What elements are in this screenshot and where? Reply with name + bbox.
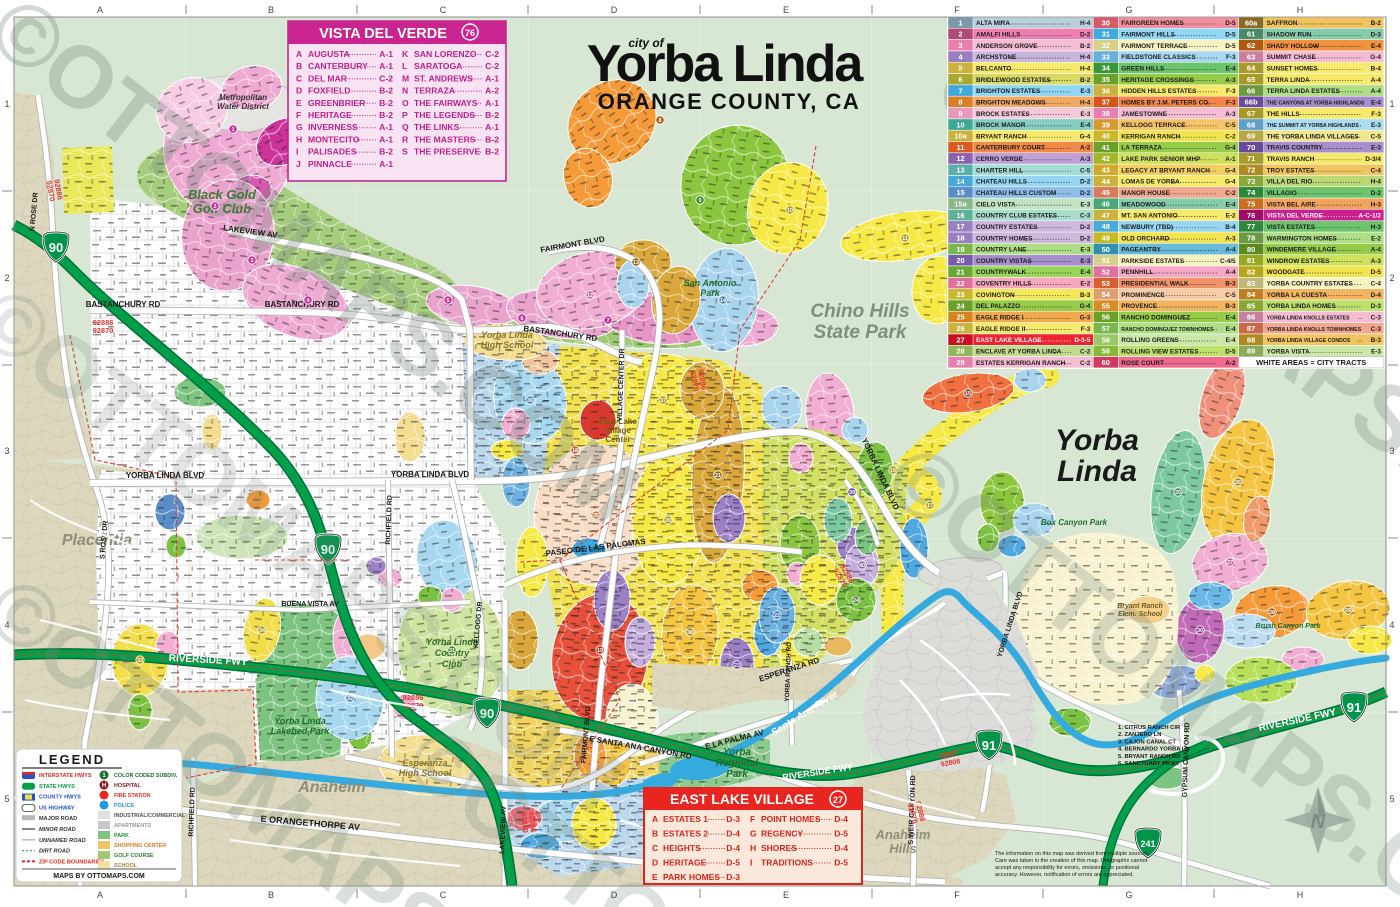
svg-text:N: N: [402, 86, 408, 96]
svg-text:D-4: D-4: [726, 843, 740, 853]
svg-text:VISTA ESTATES: VISTA ESTATES: [1267, 224, 1316, 231]
svg-text:E: E: [296, 98, 302, 108]
svg-text:B-2: B-2: [485, 147, 499, 157]
svg-text:A-4: A-4: [1371, 88, 1382, 95]
svg-text:A-3: A-3: [1225, 111, 1236, 118]
svg-text:Village: Village: [605, 426, 631, 435]
svg-text:D-3: D-3: [1371, 303, 1382, 310]
svg-text:81: 81: [1247, 256, 1255, 265]
svg-text:26: 26: [956, 324, 964, 333]
svg-text:E-4: E-4: [1371, 99, 1381, 106]
svg-text:Elem. School: Elem. School: [1118, 611, 1163, 618]
svg-text:5: 5: [958, 64, 962, 73]
svg-text:THE YORBA LINDA VILLAGES: THE YORBA LINDA VILLAGES: [1267, 133, 1360, 140]
svg-text:BASTANCHURY RD: BASTANCHURY RD: [86, 300, 161, 309]
svg-text:Club: Club: [442, 659, 462, 669]
svg-text:COLOR CODED SUBDIV.: COLOR CODED SUBDIV.: [114, 773, 178, 779]
svg-text:78: 78: [1247, 234, 1255, 243]
svg-text:65: 65: [1247, 75, 1255, 84]
svg-text:C-2: C-2: [1225, 133, 1236, 140]
svg-text:GREEN HILLS: GREEN HILLS: [1121, 66, 1165, 73]
svg-text:46: 46: [1102, 200, 1110, 209]
svg-text:FOXFIELD: FOXFIELD: [308, 86, 351, 96]
svg-text:76: 76: [1247, 211, 1255, 220]
svg-text:TRADITIONS: TRADITIONS: [761, 858, 813, 868]
svg-text:J: J: [296, 159, 301, 169]
svg-text:THE SUMMIT AT YORBA HIGHLANDS: THE SUMMIT AT YORBA HIGHLANDS: [1267, 123, 1360, 129]
svg-text:15a: 15a: [954, 200, 967, 209]
svg-text:D: D: [611, 5, 618, 15]
svg-text:COUNTY HWYS: COUNTY HWYS: [39, 795, 81, 801]
svg-text:YORBA LINDA KNOLLS ESTATES: YORBA LINDA KNOLLS ESTATES: [1267, 316, 1351, 322]
svg-text:40: 40: [1102, 132, 1110, 141]
svg-text:16: 16: [956, 211, 964, 220]
svg-text:23: 23: [734, 663, 740, 669]
svg-text:29: 29: [1345, 608, 1351, 614]
svg-text:CIELO VISTA: CIELO VISTA: [976, 201, 1016, 208]
svg-text:3: 3: [4, 446, 9, 456]
svg-text:A-1: A-1: [379, 159, 393, 169]
svg-text:D-2: D-2: [1080, 224, 1091, 231]
svg-text:EAST LAKE VILLAGE: EAST LAKE VILLAGE: [670, 791, 814, 807]
svg-text:Golf Club: Golf Club: [193, 201, 252, 216]
svg-text:B: B: [296, 61, 302, 71]
svg-text:22: 22: [774, 613, 780, 619]
svg-text:HOSPITAL: HOSPITAL: [114, 783, 142, 789]
svg-text:G: G: [750, 829, 757, 839]
svg-text:34: 34: [259, 628, 266, 634]
svg-text:A-1: A-1: [485, 73, 499, 83]
svg-text:C-3: C-3: [1371, 326, 1382, 333]
svg-text:A-1: A-1: [379, 122, 393, 132]
svg-text:NEWBURY (TBD): NEWBURY (TBD): [1121, 224, 1173, 231]
svg-text:6. SANCTUARY PKWY: 6. SANCTUARY PKWY: [1118, 761, 1180, 767]
svg-text:66b: 66b: [1245, 98, 1258, 107]
svg-text:68: 68: [1247, 120, 1255, 129]
svg-text:C-3: C-3: [1371, 315, 1382, 322]
svg-text:45: 45: [1102, 188, 1110, 197]
svg-text:F: F: [954, 890, 960, 900]
svg-text:PINNACLE: PINNACLE: [308, 159, 352, 169]
svg-text:G-4: G-4: [1225, 167, 1236, 174]
svg-text:HEIGHTS: HEIGHTS: [663, 843, 701, 853]
svg-text:DEL MAR: DEL MAR: [308, 73, 348, 83]
svg-text:D-3: D-3: [726, 814, 740, 824]
svg-text:STATE HWYS: STATE HWYS: [39, 784, 75, 790]
svg-text:74: 74: [1247, 188, 1256, 197]
svg-text:HERITAGE CROSSINGS: HERITAGE CROSSINGS: [1121, 77, 1194, 84]
svg-text:THE PRESERVE: THE PRESERVE: [414, 147, 480, 157]
svg-text:F-3: F-3: [1081, 326, 1091, 333]
svg-text:PALISADES: PALISADES: [308, 147, 357, 157]
svg-text:A: A: [652, 814, 658, 824]
svg-text:YORBA LINDA BLVD: YORBA LINDA BLVD: [391, 470, 470, 479]
svg-text:BRIGHTON ESTATES: BRIGHTON ESTATES: [976, 88, 1041, 95]
svg-text:10: 10: [956, 120, 964, 129]
svg-text:5: 5: [4, 794, 9, 804]
svg-text:D-4: D-4: [834, 843, 848, 853]
svg-text:D: D: [296, 86, 302, 96]
svg-text:27: 27: [1227, 560, 1233, 566]
svg-text:CANTERBURY COURT: CANTERBURY COURT: [976, 145, 1045, 152]
svg-text:C: C: [652, 843, 658, 853]
svg-text:COUNTRY CLUB ESTATES: COUNTRY CLUB ESTATES: [976, 213, 1058, 220]
svg-text:B-2: B-2: [379, 86, 393, 96]
svg-text:THE MASTERS: THE MASTERS: [414, 134, 476, 144]
svg-text:5: 5: [1389, 794, 1394, 804]
svg-text:12: 12: [956, 154, 964, 163]
svg-text:B-2: B-2: [485, 134, 499, 144]
svg-text:PROVENCE: PROVENCE: [1121, 303, 1158, 310]
svg-text:59: 59: [1102, 347, 1110, 356]
svg-text:77: 77: [1247, 222, 1255, 231]
svg-text:D-3: D-3: [1371, 32, 1382, 39]
svg-text:YORBA LA CUESTA: YORBA LA CUESTA: [1267, 292, 1328, 299]
svg-text:50: 50: [1102, 245, 1110, 254]
svg-text:33: 33: [137, 658, 143, 664]
svg-text:PARK HOMES: PARK HOMES: [663, 872, 720, 882]
svg-text:1: 1: [4, 99, 9, 109]
svg-text:G: G: [1125, 890, 1132, 900]
svg-text:Anaheim: Anaheim: [297, 779, 366, 796]
svg-text:KELLOGG TERRACE: KELLOGG TERRACE: [1121, 122, 1186, 129]
svg-text:62: 62: [1247, 41, 1255, 50]
svg-text:B-2: B-2: [1371, 20, 1382, 27]
svg-text:D-5: D-5: [1225, 349, 1236, 356]
svg-text:85: 85: [1247, 301, 1255, 310]
svg-text:A: A: [97, 890, 103, 900]
svg-text:C-2: C-2: [485, 61, 499, 71]
svg-text:B-3: B-3: [1080, 292, 1091, 299]
svg-text:E-2: E-2: [1080, 281, 1090, 288]
svg-text:6: 6: [520, 316, 523, 322]
svg-text:36: 36: [1102, 86, 1110, 95]
svg-text:B-2: B-2: [379, 98, 393, 108]
svg-text:F-3: F-3: [1226, 99, 1236, 106]
svg-text:G: G: [296, 122, 303, 132]
svg-text:67: 67: [1247, 109, 1255, 118]
svg-text:7: 7: [606, 318, 609, 324]
svg-text:28: 28: [956, 347, 964, 356]
svg-text:2. ZANJERO LN: 2. ZANJERO LN: [1118, 732, 1161, 738]
svg-text:D: D: [652, 858, 658, 868]
svg-text:TERRA LINDA: TERRA LINDA: [1267, 77, 1310, 84]
svg-text:61: 61: [1247, 30, 1255, 39]
svg-text:APARTMENTS: APARTMENTS: [114, 823, 151, 829]
svg-text:43: 43: [1102, 166, 1110, 175]
svg-text:ST. ANDREWS: ST. ANDREWS: [414, 73, 473, 83]
svg-text:POINT HOMES: POINT HOMES: [761, 814, 821, 824]
svg-text:9: 9: [958, 109, 962, 118]
svg-text:51: 51: [1102, 256, 1110, 265]
svg-text:TERRAZA: TERRAZA: [414, 86, 455, 96]
svg-text:9: 9: [698, 198, 701, 204]
svg-text:E-3: E-3: [1080, 201, 1090, 208]
svg-text:G: G: [1125, 5, 1132, 15]
svg-text:TRAVIS COUNTRY: TRAVIS COUNTRY: [1267, 145, 1324, 152]
svg-text:YORBA COUNTRY ESTATES: YORBA COUNTRY ESTATES: [1267, 281, 1354, 288]
svg-text:16: 16: [890, 468, 896, 474]
svg-text:3: 3: [250, 258, 253, 264]
svg-text:VISTA BEL AIRE: VISTA BEL AIRE: [1267, 201, 1317, 208]
svg-text:E-4: E-4: [1226, 337, 1236, 344]
svg-text:Park: Park: [700, 288, 721, 298]
svg-text:C-2: C-2: [485, 49, 499, 59]
svg-text:H: H: [1297, 5, 1304, 15]
svg-text:MINOR ROAD: MINOR ROAD: [39, 827, 76, 833]
svg-text:21: 21: [715, 473, 721, 479]
svg-text:F-3: F-3: [1226, 88, 1236, 95]
svg-text:PAGEANTRY: PAGEANTRY: [1121, 247, 1161, 254]
svg-text:H-4: H-4: [1371, 179, 1382, 186]
svg-text:SHADY HOLLOW: SHADY HOLLOW: [1267, 43, 1320, 50]
svg-text:E-3: E-3: [1371, 349, 1381, 356]
svg-text:M: M: [402, 73, 409, 83]
svg-text:H: H: [296, 134, 302, 144]
svg-text:accuracy. However, notificatio: accuracy. However, notification of error…: [995, 872, 1134, 878]
svg-text:55: 55: [1102, 301, 1110, 310]
svg-text:ALTA MIRA: ALTA MIRA: [976, 20, 1010, 27]
svg-text:3. CAJON CANAL CT: 3. CAJON CANAL CT: [1118, 739, 1176, 745]
svg-text:40: 40: [859, 563, 865, 569]
svg-text:C-5: C-5: [1080, 167, 1091, 174]
svg-text:CHATEAU HILLS CUSTOM: CHATEAU HILLS CUSTOM: [976, 190, 1056, 197]
svg-text:D-5: D-5: [1225, 43, 1236, 50]
svg-text:B-2: B-2: [379, 110, 393, 120]
svg-text:1: 1: [231, 127, 234, 133]
svg-text:E-4: E-4: [1226, 201, 1236, 208]
svg-text:D-5: D-5: [726, 858, 740, 868]
svg-text:D-2: D-2: [1080, 179, 1091, 186]
svg-text:A-1: A-1: [379, 61, 393, 71]
svg-text:D-3-5: D-3-5: [1074, 337, 1090, 344]
svg-text:31: 31: [449, 648, 455, 654]
svg-text:INVERNESS: INVERNESS: [308, 122, 358, 132]
svg-text:COUNTRY HOMES: COUNTRY HOMES: [976, 235, 1033, 242]
svg-text:Yorba Linda: Yorba Linda: [274, 716, 326, 726]
svg-text:1. CITRUS RANCH CIR: 1. CITRUS RANCH CIR: [1118, 725, 1181, 731]
svg-text:A-4: A-4: [1371, 77, 1382, 84]
svg-text:70: 70: [1247, 143, 1255, 152]
svg-text:ZIP CODE BOUNDARIES: ZIP CODE BOUNDARIES: [39, 859, 105, 865]
svg-text:47: 47: [1102, 211, 1110, 220]
svg-text:4: 4: [4, 620, 9, 630]
svg-text:G-4: G-4: [1225, 145, 1236, 152]
svg-text:E-4: E-4: [1080, 269, 1090, 276]
svg-text:B-2: B-2: [1080, 43, 1091, 50]
svg-text:90: 90: [49, 240, 63, 255]
svg-text:YORBA LINDA VILLAGE CONDOS: YORBA LINDA VILLAGE CONDOS: [1267, 338, 1351, 344]
svg-text:83: 83: [1247, 279, 1255, 288]
svg-text:D-5: D-5: [1371, 269, 1382, 276]
svg-text:B-2: B-2: [379, 147, 393, 157]
svg-text:H: H: [102, 783, 106, 789]
svg-text:D-2: D-2: [1371, 190, 1382, 197]
svg-text:SUMMIT CHASE: SUMMIT CHASE: [1267, 54, 1317, 61]
svg-text:VILLA DEL RIO: VILLA DEL RIO: [1267, 179, 1313, 186]
svg-text:B-4: B-4: [1371, 66, 1382, 73]
svg-text:13: 13: [956, 166, 964, 175]
svg-text:D: D: [611, 890, 618, 900]
svg-text:19: 19: [597, 648, 603, 654]
svg-text:20: 20: [956, 256, 964, 265]
svg-text:E: E: [783, 890, 789, 900]
svg-text:39: 39: [1102, 120, 1110, 129]
svg-text:KERRIGAN RANCH: KERRIGAN RANCH: [1121, 133, 1180, 140]
svg-text:ESTATES 2: ESTATES 2: [663, 829, 708, 839]
svg-text:E-2: E-2: [1226, 213, 1236, 220]
svg-text:F: F: [750, 814, 755, 824]
svg-text:1: 1: [1389, 99, 1394, 109]
svg-text:92870: 92870: [519, 812, 530, 834]
svg-text:C-5: C-5: [1371, 133, 1382, 140]
svg-text:B-3: B-3: [1225, 281, 1236, 288]
svg-text:2: 2: [958, 30, 962, 39]
svg-text:L: L: [402, 61, 407, 71]
svg-text:56: 56: [1102, 313, 1110, 322]
svg-text:D-2: D-2: [1080, 235, 1091, 242]
svg-text:39: 39: [849, 490, 855, 496]
svg-text:A-4: A-4: [1225, 247, 1236, 254]
svg-text:ESTATES KERRIGAN RANCH: ESTATES KERRIGAN RANCH: [976, 360, 1066, 367]
svg-text:2: 2: [4, 273, 9, 283]
svg-text:18: 18: [572, 448, 578, 454]
svg-text:F: F: [954, 5, 960, 15]
svg-text:R: R: [402, 134, 409, 144]
svg-text:E-3: E-3: [1080, 258, 1090, 265]
svg-text:17: 17: [927, 503, 933, 509]
svg-text:69: 69: [1247, 132, 1255, 141]
svg-text:UNNAMED ROAD: UNNAMED ROAD: [39, 838, 86, 844]
svg-text:D-5: D-5: [1225, 32, 1236, 39]
svg-text:D-4: D-4: [1371, 292, 1382, 299]
svg-text:INTERSTATE HWYS: INTERSTATE HWYS: [39, 773, 92, 779]
svg-text:EAST LAKE VILLAGE: EAST LAKE VILLAGE: [976, 337, 1042, 344]
svg-text:2: 2: [213, 204, 216, 210]
svg-text:Yorba: Yorba: [723, 747, 751, 758]
svg-text:C-2: C-2: [1225, 190, 1236, 197]
svg-text:D-5: D-5: [834, 829, 848, 839]
svg-text:11: 11: [957, 143, 965, 152]
svg-text:F-3: F-3: [1226, 54, 1236, 61]
svg-text:EAGLE RIDGE I: EAGLE RIDGE I: [976, 315, 1024, 322]
svg-text:G-3: G-3: [1080, 315, 1091, 322]
svg-text:92870: 92870: [93, 326, 114, 335]
svg-text:city of: city of: [628, 36, 664, 50]
svg-text:23: 23: [956, 290, 964, 299]
svg-text:E: E: [783, 5, 789, 15]
svg-text:42: 42: [1102, 154, 1110, 163]
svg-text:HERITAGE: HERITAGE: [308, 110, 352, 120]
svg-text:54: 54: [1102, 290, 1111, 299]
svg-text:THE CANYONS AT YORBA HIGHLANDS: THE CANYONS AT YORBA HIGHLANDS: [1267, 100, 1365, 106]
svg-text:BROCK MANOR: BROCK MANOR: [976, 122, 1026, 129]
svg-text:PARKSIDE ESTATES: PARKSIDE ESTATES: [1121, 258, 1185, 265]
svg-text:P: P: [402, 110, 408, 120]
svg-text:E-4: E-4: [1371, 43, 1381, 50]
svg-text:25: 25: [1175, 490, 1181, 496]
svg-text:H-3: H-3: [1371, 201, 1382, 208]
svg-text:WINDEMERE VILLAGE: WINDEMERE VILLAGE: [1267, 247, 1337, 254]
svg-text:POLICE: POLICE: [114, 803, 134, 809]
svg-text:D-4: D-4: [834, 814, 848, 824]
svg-text:34: 34: [1102, 64, 1111, 73]
svg-text:G-4: G-4: [1225, 179, 1236, 186]
svg-text:I: I: [296, 147, 298, 157]
svg-text:A-C-1/2: A-C-1/2: [1359, 213, 1382, 220]
svg-text:ROSE COURT: ROSE COURT: [1121, 360, 1164, 367]
svg-text:A-1: A-1: [485, 122, 499, 132]
svg-text:LOMAS DE YORBA: LOMAS DE YORBA: [1121, 179, 1180, 186]
svg-text:C-4: C-4: [1371, 167, 1382, 174]
svg-text:ESTATES 1: ESTATES 1: [663, 814, 708, 824]
svg-text:27: 27: [956, 335, 964, 344]
svg-text:38: 38: [1102, 109, 1110, 118]
svg-text:91: 91: [1347, 700, 1361, 715]
svg-text:8: 8: [658, 118, 661, 124]
svg-text:28: 28: [1269, 610, 1275, 616]
svg-text:LA TERRAZA: LA TERRAZA: [1121, 145, 1162, 152]
svg-text:30: 30: [1197, 628, 1203, 634]
svg-text:5: 5: [446, 298, 449, 304]
svg-text:E-4: E-4: [1226, 315, 1236, 322]
svg-text:REGENCY: REGENCY: [761, 829, 803, 839]
svg-text:25: 25: [956, 313, 964, 322]
svg-text:Bryant Ranch: Bryant Ranch: [1117, 603, 1163, 610]
svg-text:HOMES BY J.M. PETERS CO.: HOMES BY J.M. PETERS CO.: [1121, 99, 1210, 106]
svg-text:71: 71: [1247, 154, 1255, 163]
svg-text:B-2: B-2: [485, 110, 499, 120]
svg-text:DEL PALAZZO: DEL PALAZZO: [976, 303, 1020, 310]
svg-text:C-2: C-2: [379, 73, 393, 83]
svg-text:Anaheim: Anaheim: [875, 827, 931, 842]
svg-text:D-5: D-5: [1225, 20, 1236, 27]
svg-text:E-3: E-3: [1080, 111, 1090, 118]
svg-text:7: 7: [958, 86, 962, 95]
svg-text:C-2: C-2: [1080, 349, 1091, 356]
svg-text:E-3: E-3: [1371, 145, 1381, 152]
svg-text:C-3: C-3: [1080, 213, 1091, 220]
svg-text:YORBA LINDA BLVD: YORBA LINDA BLVD: [126, 471, 205, 480]
svg-text:H: H: [1297, 890, 1304, 900]
svg-text:COUNTRY ESTATES: COUNTRY ESTATES: [976, 224, 1038, 231]
svg-text:Placentia: Placentia: [62, 532, 132, 549]
svg-text:13: 13: [633, 260, 639, 266]
svg-text:TRAVIS RANCH: TRAVIS RANCH: [1267, 156, 1315, 163]
svg-text:35: 35: [1102, 75, 1110, 84]
svg-text:MEADOWOOD: MEADOWOOD: [1121, 201, 1166, 208]
svg-text:A-2: A-2: [485, 86, 499, 96]
svg-text:FAIRMONT HILLS: FAIRMONT HILLS: [1121, 32, 1175, 39]
svg-text:5. BRYANT RANCH RD: 5. BRYANT RANCH RD: [1118, 754, 1180, 760]
svg-text:PARK: PARK: [114, 833, 129, 839]
svg-text:E: E: [652, 872, 658, 882]
svg-text:High School: High School: [481, 340, 534, 350]
svg-text:12: 12: [587, 293, 593, 299]
svg-text:Linda: Linda: [1057, 455, 1137, 488]
svg-text:84: 84: [1247, 290, 1256, 299]
svg-text:8: 8: [958, 98, 962, 107]
svg-text:C: C: [296, 73, 302, 83]
svg-text:I: I: [750, 858, 752, 868]
svg-text:75: 75: [1247, 200, 1255, 209]
svg-text:80: 80: [1247, 245, 1255, 254]
svg-text:A-4: A-4: [1371, 247, 1382, 254]
svg-text:C: C: [440, 5, 447, 15]
svg-text:72: 72: [1247, 166, 1255, 175]
svg-text:COUNTRY VISTAS: COUNTRY VISTAS: [976, 258, 1032, 265]
svg-text:B: B: [652, 829, 658, 839]
